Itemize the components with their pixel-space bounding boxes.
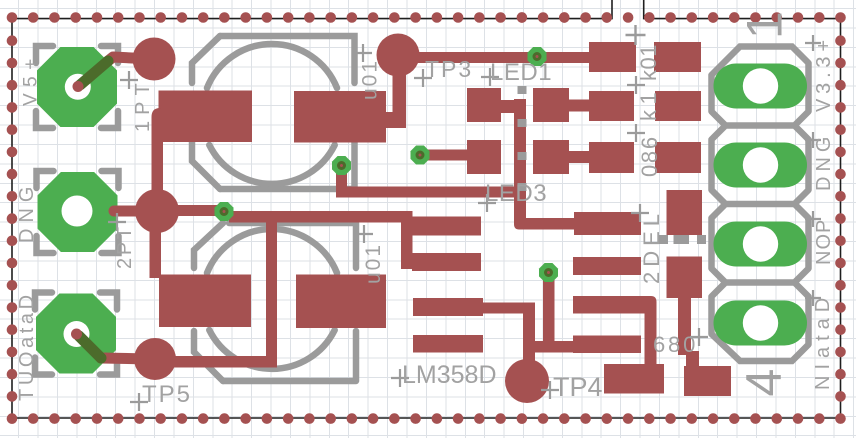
svg-text:u01: u01 <box>359 59 382 100</box>
svg-text:k1: k1 <box>636 87 661 121</box>
svg-text:1PT: 1PT <box>132 77 154 132</box>
svg-text:NIataD: NIataD <box>812 292 834 390</box>
svg-text:086: 086 <box>637 135 662 177</box>
svg-text:k01: k01 <box>636 44 661 81</box>
svg-text:TP3: TP3 <box>425 56 473 82</box>
svg-text:2PT: 2PT <box>114 224 136 269</box>
svg-text:1: 1 <box>737 11 793 39</box>
svg-text:DNG: DNG <box>16 181 38 243</box>
svg-text:LM358D: LM358D <box>402 361 497 389</box>
svg-text:DNG: DNG <box>813 132 835 191</box>
svg-text:LED3: LED3 <box>485 180 547 207</box>
svg-text:TP4: TP4 <box>553 372 603 402</box>
svg-text:TP5: TP5 <box>142 381 192 408</box>
svg-text:TUOataD: TUOataD <box>16 291 38 401</box>
svg-text:680: 680 <box>653 332 698 357</box>
svg-text:NOP: NOP <box>813 219 835 265</box>
svg-text:V3.3+: V3.3+ <box>813 35 835 112</box>
svg-text:4: 4 <box>736 369 792 397</box>
svg-text:V5+: V5+ <box>21 52 42 106</box>
svg-text:LED1: LED1 <box>490 59 552 86</box>
svg-text:2DEL: 2DEL <box>639 209 664 284</box>
svg-text:u01: u01 <box>362 243 385 284</box>
